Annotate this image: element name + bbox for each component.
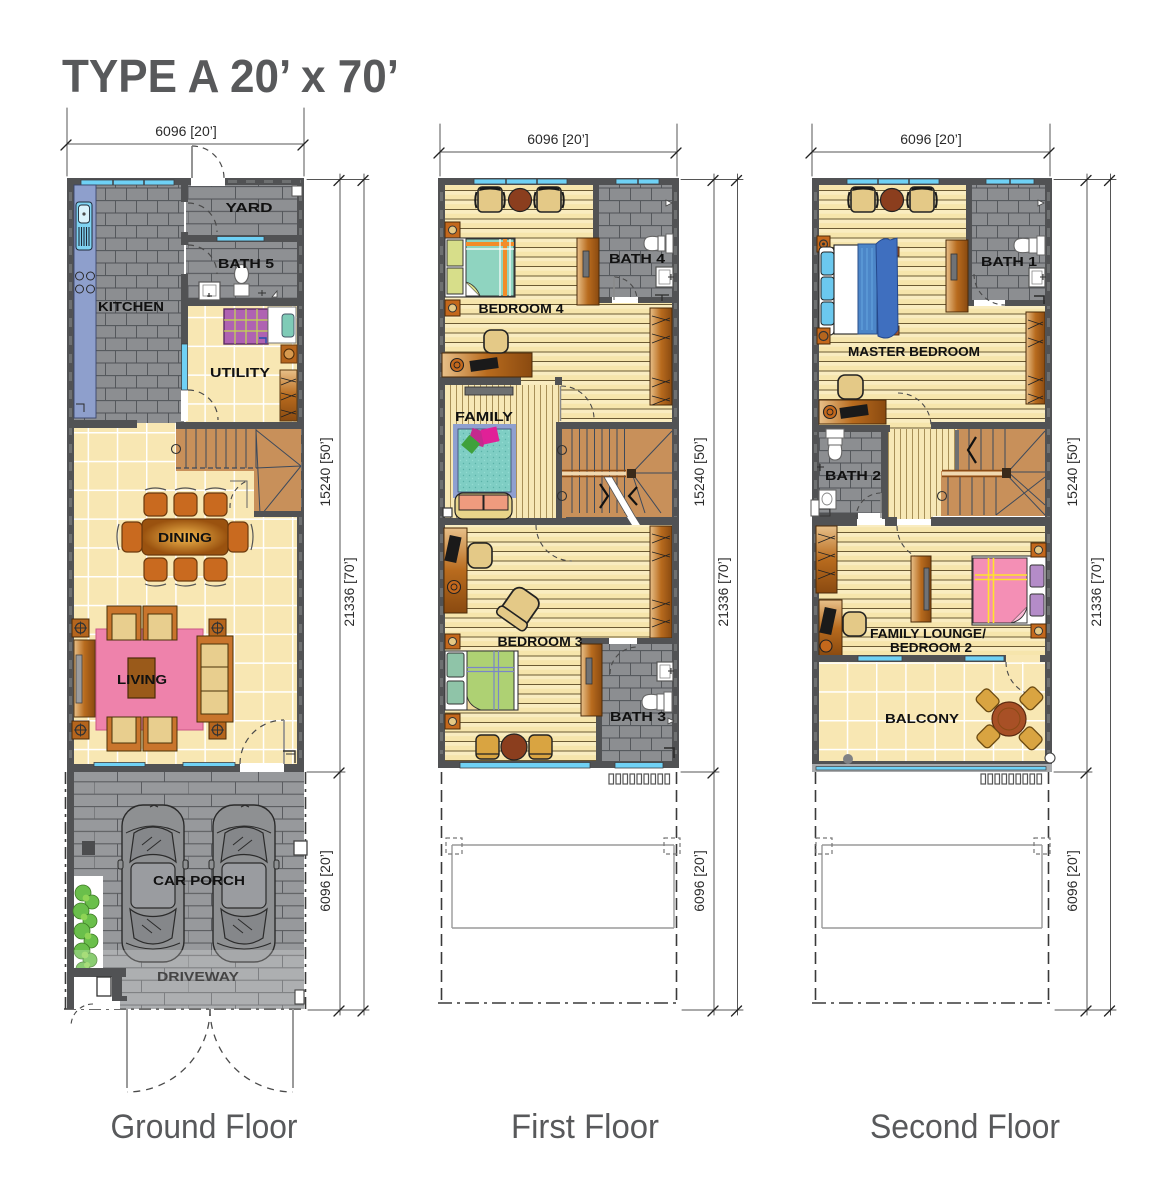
- svg-text:BATH 4: BATH 4: [609, 252, 665, 266]
- svg-text:6096 [20’]: 6096 [20’]: [900, 131, 962, 147]
- svg-text:CAR PORCH: CAR PORCH: [153, 874, 245, 888]
- svg-text:21336 [70’]: 21336 [70’]: [715, 557, 731, 626]
- svg-text:6096 [20’]: 6096 [20’]: [527, 131, 589, 147]
- svg-text:6096 [20’]: 6096 [20’]: [155, 123, 217, 139]
- svg-text:DINING: DINING: [158, 531, 212, 545]
- svg-text:YARD: YARD: [226, 201, 273, 215]
- svg-text:6096 [20’]: 6096 [20’]: [317, 850, 333, 912]
- svg-text:LIVING: LIVING: [117, 673, 167, 687]
- svg-text:6096 [20’]: 6096 [20’]: [691, 850, 707, 912]
- svg-text:MASTER BEDROOM: MASTER BEDROOM: [848, 345, 980, 359]
- svg-text:Ground Floor: Ground Floor: [111, 1108, 298, 1146]
- svg-text:BATH 3: BATH 3: [610, 710, 666, 724]
- svg-text:BALCONY: BALCONY: [885, 712, 960, 726]
- svg-text:21336 [70’]: 21336 [70’]: [341, 557, 357, 626]
- svg-text:Second Floor: Second Floor: [870, 1108, 1060, 1146]
- svg-text:BATH 5: BATH 5: [218, 257, 274, 271]
- svg-text:BATH 1: BATH 1: [981, 255, 1037, 269]
- svg-text:15240 [50’]: 15240 [50’]: [691, 437, 707, 506]
- svg-text:BEDROOM 2: BEDROOM 2: [890, 641, 972, 655]
- svg-text:BEDROOM 4: BEDROOM 4: [479, 302, 564, 316]
- svg-text:KITCHEN: KITCHEN: [98, 300, 164, 314]
- svg-text:BATH 2: BATH 2: [825, 469, 881, 483]
- svg-text:BEDROOM 3: BEDROOM 3: [498, 635, 583, 649]
- svg-text:First Floor: First Floor: [511, 1108, 659, 1146]
- svg-text:15240 [50’]: 15240 [50’]: [1064, 437, 1080, 506]
- svg-text:21336 [70’]: 21336 [70’]: [1088, 557, 1104, 626]
- svg-text:15240 [50’]: 15240 [50’]: [317, 437, 333, 506]
- svg-text:FAMILY LOUNGE/: FAMILY LOUNGE/: [870, 627, 987, 641]
- svg-text:FAMILY: FAMILY: [455, 410, 514, 424]
- svg-text:TYPE A 20’ x 70’: TYPE A 20’ x 70’: [62, 50, 399, 102]
- svg-text:6096 [20’]: 6096 [20’]: [1064, 850, 1080, 912]
- svg-text:UTILITY: UTILITY: [210, 366, 271, 380]
